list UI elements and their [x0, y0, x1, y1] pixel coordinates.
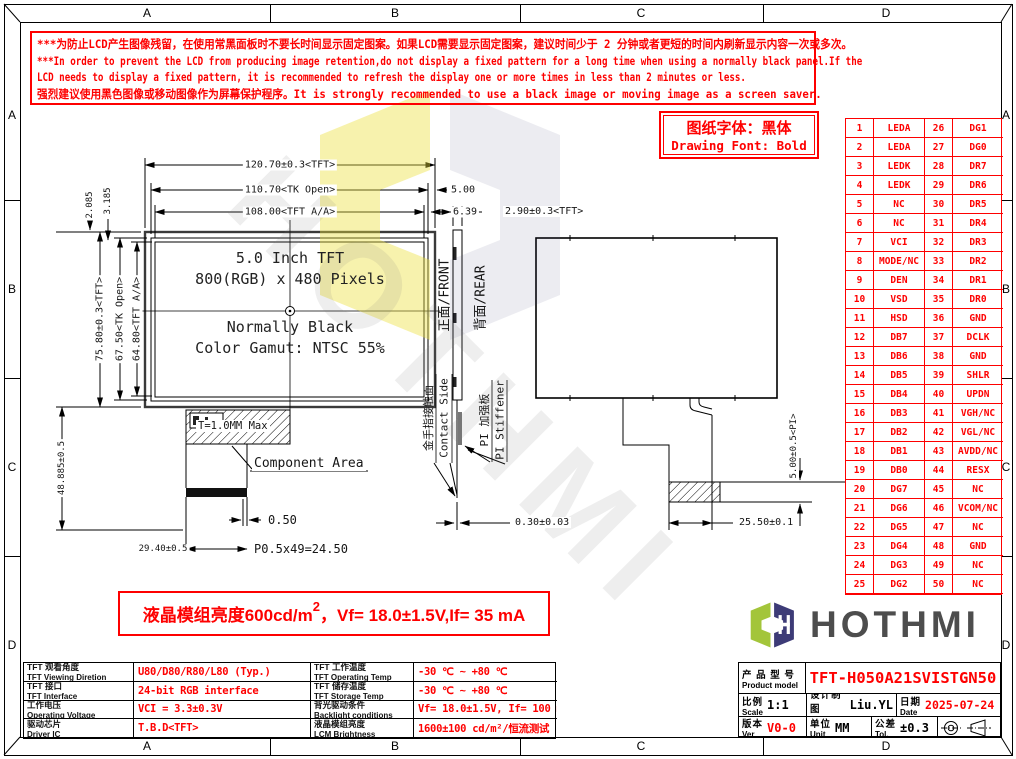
- pin-number: 9: [846, 271, 874, 290]
- dim-width-tft: 120.70±0.3<TFT>: [243, 160, 337, 171]
- pin-name: DB4: [874, 385, 925, 404]
- pi-stiffener-label-en: PI Stiffener: [494, 378, 507, 461]
- pin-number: 38: [925, 347, 953, 366]
- brightness-note-box: 液晶模组亮度600cd/m2，Vf= 18.0±1.5V,If= 35 mA: [118, 591, 550, 636]
- pin-name: DR1: [953, 271, 1003, 290]
- pin-name: NC: [874, 214, 925, 233]
- pin-number: 6: [846, 214, 874, 233]
- spec-table: TFT 观看角度TFT Viewing DiretionU80/D80/R80/…: [23, 662, 556, 739]
- pin-name: LEDA: [874, 138, 925, 157]
- spec-label: 驱动芯片Driver IC: [24, 719, 134, 738]
- pin-number: 12: [846, 328, 874, 347]
- pin-name: NC: [874, 195, 925, 214]
- warning-line: 强烈建议使用黑色图像或移动图像作为屏幕保护程序。It is strongly r…: [37, 86, 755, 103]
- pin-name: DR6: [953, 176, 1003, 195]
- front-side-label: 正面/FRONT: [434, 257, 453, 334]
- dim-height-tk-open: 67.50<TK Open>: [115, 275, 126, 363]
- dim-corner-gap-small: 2.085: [85, 189, 95, 220]
- pin-number: 10: [846, 290, 874, 309]
- pin-number: 15: [846, 385, 874, 404]
- pi-stiffener-label-cn: PI 加强板: [476, 392, 492, 449]
- pin-name: RESX: [953, 461, 1003, 480]
- pin-number: 28: [925, 157, 953, 176]
- contact-side-label-en: Contact Side: [438, 376, 451, 459]
- projection-symbol-cell: [937, 716, 1000, 738]
- dim-width-active: 108.00<TFT A/A>: [243, 207, 337, 218]
- date-cell: 日期Date 2025-07-24: [896, 693, 1000, 716]
- pin-name: GND: [953, 347, 1003, 366]
- spec-value: T.B.D<TFT>: [134, 719, 311, 738]
- font-note-en: Drawing Font: Bold: [671, 138, 806, 153]
- pin-name: DR2: [953, 252, 1003, 271]
- pin-name: DG7: [874, 480, 925, 499]
- pin-name: DG5: [874, 518, 925, 537]
- dim-edge-gap-active: 6.39: [451, 207, 479, 218]
- pin-number: 23: [846, 537, 874, 556]
- spec-label: 液晶模组亮度LCM Brightness: [311, 719, 414, 738]
- pin-name: DEN: [874, 271, 925, 290]
- pin-number: 49: [925, 556, 953, 575]
- product-model-label-cell: 产 品 型 号Product model: [739, 663, 805, 693]
- pin-name: DG0: [953, 138, 1003, 157]
- spec-label: 工作电压Operating Voltage: [24, 701, 134, 720]
- pin-number: 11: [846, 309, 874, 328]
- spec-value: U80/D80/R80/L80 (Typ.): [134, 663, 311, 682]
- spec-label: TFT 储存温度TFT Storage Temp: [311, 682, 414, 701]
- pin-number: 30: [925, 195, 953, 214]
- pin-name: DB0: [874, 461, 925, 480]
- hothmi-logo-mark: [748, 600, 802, 650]
- warning-line: LCD needs to display a fixed pattern, it…: [37, 69, 655, 86]
- pin-number: 48: [925, 537, 953, 556]
- warning-line: ***In order to prevent the LCD from prod…: [37, 53, 655, 70]
- drawing-sheet: A B C D A B C D A B C D A B C D: [0, 0, 1016, 759]
- rear-side-label: 背面/REAR: [470, 263, 489, 332]
- pin-number: 26: [925, 119, 953, 138]
- dim-stiffener-width: 5.00±0.5<PI>: [789, 411, 799, 480]
- pin-number: 29: [925, 176, 953, 195]
- dim-pad-width: 0.50: [266, 513, 299, 527]
- spec-value: VCI = 3.3±0.3V: [134, 701, 311, 720]
- pin-number: 47: [925, 518, 953, 537]
- font-note-cn: 图纸字体：黑体: [686, 117, 791, 138]
- pin-number: 14: [846, 366, 874, 385]
- pin-name: VGL/NC: [953, 423, 1003, 442]
- dim-width-tk-open: 110.70<TK Open>: [243, 185, 337, 196]
- pin-table: 1LEDA26DG12LEDA27DG03LEDK28DR74LEDK29DR6…: [845, 118, 1002, 595]
- spec-value: -30 ℃ ~ +80 ℃: [414, 663, 557, 682]
- pin-number: 40: [925, 385, 953, 404]
- pin-name: GND: [953, 537, 1003, 556]
- warning-line: ***为防止LCD产生图像残留，在使用常黑面板时不要长时间显示固定图案。如果LC…: [37, 36, 755, 53]
- pin-name: DB2: [874, 423, 925, 442]
- pin-number: 37: [925, 328, 953, 347]
- pin-number: 13: [846, 347, 874, 366]
- pin-name: DG1: [953, 119, 1003, 138]
- pin-name: DR0: [953, 290, 1003, 309]
- retention-warning-box: ***为防止LCD产生图像残留，在使用常黑面板时不要长时间显示固定图案。如果LC…: [30, 31, 816, 105]
- pin-name: GND: [953, 309, 1003, 328]
- pin-number: 44: [925, 461, 953, 480]
- spec-value: -30 ℃ ~ +80 ℃: [414, 682, 557, 701]
- pin-name: VSD: [874, 290, 925, 309]
- pin-name: DB6: [874, 347, 925, 366]
- pin-number: 8: [846, 252, 874, 271]
- pin-name: DR4: [953, 214, 1003, 233]
- pin-name: DG3: [874, 556, 925, 575]
- pin-number: 35: [925, 290, 953, 309]
- pin-number: 16: [846, 404, 874, 423]
- design-cell: 设计制图Design Liu.YL: [806, 693, 896, 716]
- component-area-label: Component Area: [252, 456, 366, 471]
- pin-number: 3: [846, 157, 874, 176]
- spec-label: TFT 工作温度TFT Operating Temp: [311, 663, 414, 682]
- pin-number: 42: [925, 423, 953, 442]
- rear-view-outline: [536, 238, 777, 398]
- pin-number: 21: [846, 499, 874, 518]
- spec-label: TFT 观看角度TFT Viewing Diretion: [24, 663, 134, 682]
- pin-name: NC: [953, 518, 1003, 537]
- pin-number: 2: [846, 138, 874, 157]
- pin-name: SHLR: [953, 366, 1003, 385]
- pin-number: 46: [925, 499, 953, 518]
- pin-name: DR3: [953, 233, 1003, 252]
- pin-number: 18: [846, 442, 874, 461]
- dim-fpc-width: 29.40±0.5: [137, 544, 190, 554]
- hothmi-logo-text: HOTHMI: [810, 604, 980, 646]
- pin-number: 1: [846, 119, 874, 138]
- pin-number: 41: [925, 404, 953, 423]
- pin-number: 20: [846, 480, 874, 499]
- pin-number: 36: [925, 309, 953, 328]
- spec-value: 24-bit RGB interface: [134, 682, 311, 701]
- front-view-subtitle: Normally Black Color Gamut: NTSC 55%: [163, 317, 417, 359]
- spec-label: 背光驱动条件Backlight conditions: [311, 701, 414, 720]
- pin-name: DB3: [874, 404, 925, 423]
- pin-number: 22: [846, 518, 874, 537]
- pin-number: 50: [925, 575, 953, 594]
- dim-fpc-thickness: 0.30±0.03: [513, 517, 571, 528]
- spec-value: Vf= 18.0±1.5V, If= 100 mA: [414, 701, 557, 720]
- pin-name: DR5: [953, 195, 1003, 214]
- title-block: 产 品 型 号Product model TFT-H050A21SVISTGN5…: [738, 662, 1001, 737]
- pin-number: 24: [846, 556, 874, 575]
- pin-number: 7: [846, 233, 874, 252]
- dim-pad-pitch: P0.5x49=24.50: [252, 542, 350, 556]
- pin-name: UPDN: [953, 385, 1003, 404]
- dim-tail-offset: 25.50±0.1: [737, 517, 795, 528]
- front-view-title: 5.0 Inch TFT 800(RGB) x 480 Pixels: [163, 248, 417, 290]
- pin-number: 34: [925, 271, 953, 290]
- version-cell: 版本Ver V0-0: [739, 716, 806, 738]
- scale-cell: 比例Scale 1:1: [739, 693, 806, 716]
- pin-name: HSD: [874, 309, 925, 328]
- pin-name: DR7: [953, 157, 1003, 176]
- hothmi-logo: HOTHMI: [748, 596, 1001, 654]
- pin-number: 27: [925, 138, 953, 157]
- pin-name: AVDD/NC: [953, 442, 1003, 461]
- pin-number: 39: [925, 366, 953, 385]
- dim-fpc-length: 48.885±0.5: [57, 439, 67, 497]
- pin-name: NC: [953, 575, 1003, 594]
- pin-number: 5: [846, 195, 874, 214]
- dim-height-tft: 75.80±0.3<TFT>: [95, 275, 106, 363]
- pin-name: LEDK: [874, 157, 925, 176]
- pin-name: VCOM/NC: [953, 499, 1003, 518]
- pin-number: 25: [846, 575, 874, 594]
- pin-name: DB7: [874, 328, 925, 347]
- pin-name: MODE/NC: [874, 252, 925, 271]
- pin-name: LEDK: [874, 176, 925, 195]
- pin-number: 43: [925, 442, 953, 461]
- third-angle-projection-icon: [941, 718, 997, 738]
- pin-name: LEDA: [874, 119, 925, 138]
- pin-name: VGH/NC: [953, 404, 1003, 423]
- pin-name: DG2: [874, 575, 925, 594]
- pin-name: DCLK: [953, 328, 1003, 347]
- pin-name: NC: [953, 556, 1003, 575]
- pin-name: DB5: [874, 366, 925, 385]
- pin-number: 45: [925, 480, 953, 499]
- drawing-font-note: 图纸字体：黑体 Drawing Font: Bold: [659, 111, 819, 159]
- spec-label: TFT 接口TFT Interface: [24, 682, 134, 701]
- pin-number: 17: [846, 423, 874, 442]
- contact-side-label-cn: 金手指接触面: [420, 383, 436, 453]
- pin-number: 19: [846, 461, 874, 480]
- pin-number: 33: [925, 252, 953, 271]
- dim-edge-gap-tk: 5.00: [449, 185, 477, 196]
- dim-corner-gap-large: 3.185: [103, 185, 113, 216]
- dim-height-active: 64.80<TFT A/A>: [132, 275, 143, 363]
- tolerance-cell: 公差Tol. ±0.3: [871, 716, 937, 738]
- pin-number: 32: [925, 233, 953, 252]
- dim-component-thickness: T=1.0MM Max: [196, 420, 270, 432]
- dim-module-thickness: 2.90±0.3<TFT>: [503, 206, 585, 217]
- pin-name: VCI: [874, 233, 925, 252]
- product-model-value-cell: TFT-H050A21SVISTGN50: [805, 663, 1000, 693]
- unit-cell: 单位Unit MM: [806, 716, 871, 738]
- pin-number: 4: [846, 176, 874, 195]
- pin-name: DG6: [874, 499, 925, 518]
- spec-value: 1600±100 cd/m²/恒流测试: [414, 719, 557, 738]
- pin-name: DG4: [874, 537, 925, 556]
- pin-name: DB1: [874, 442, 925, 461]
- pin-name: NC: [953, 480, 1003, 499]
- pin-number: 31: [925, 214, 953, 233]
